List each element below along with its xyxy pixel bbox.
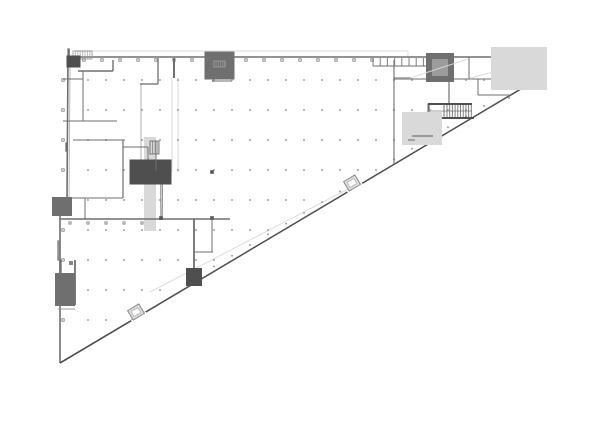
plan-element	[267, 199, 269, 201]
plan-element	[375, 109, 377, 111]
plan-element	[87, 109, 89, 111]
plan-element	[231, 199, 233, 201]
plan-element	[281, 59, 283, 61]
plan-element	[231, 139, 233, 141]
plan-element	[195, 199, 197, 201]
plan-element	[249, 139, 251, 141]
plan-element	[137, 59, 139, 61]
plan-element	[357, 79, 359, 81]
wall-end-cap	[190, 272, 198, 282]
plan-element	[249, 109, 251, 111]
plan-element	[123, 109, 125, 111]
plan-element	[303, 169, 305, 171]
plan-element	[267, 79, 269, 81]
plan-element	[321, 109, 323, 111]
plan-element	[335, 59, 337, 61]
plan-element	[267, 109, 269, 111]
plan-element	[213, 229, 215, 231]
plan-element	[159, 289, 161, 291]
plan-element	[105, 229, 107, 231]
plan-element	[62, 169, 64, 171]
plan-element	[357, 139, 359, 141]
floor-plan-page	[0, 0, 600, 424]
plan-element	[195, 169, 197, 171]
plan-element	[87, 319, 89, 321]
plan-element	[70, 59, 77, 64]
plan-element	[303, 199, 305, 201]
plan-element	[285, 223, 287, 225]
plan-element	[285, 109, 287, 111]
plan-element	[339, 169, 341, 171]
plan-element	[141, 139, 143, 141]
plan-element	[123, 229, 125, 231]
entrance-vestibule-mid	[342, 174, 364, 196]
plan-element	[245, 59, 247, 61]
plan-element	[87, 229, 89, 231]
plan-element	[177, 259, 179, 261]
plan-element	[267, 139, 269, 141]
plan-element	[105, 199, 107, 201]
plan-element	[353, 59, 355, 61]
plan-element	[87, 79, 89, 81]
mid-wall-column-ticks	[69, 222, 143, 224]
plan-element	[412, 122, 432, 135]
plan-element	[141, 199, 143, 201]
plan-element	[375, 169, 377, 171]
plan-element	[141, 79, 143, 81]
plan-element	[267, 229, 269, 231]
room-column	[69, 261, 73, 265]
plan-element	[195, 79, 197, 81]
plan-element	[249, 79, 251, 81]
plan-element	[141, 259, 143, 261]
plan-element	[267, 234, 269, 236]
plan-element	[159, 229, 161, 231]
plan-element	[177, 79, 179, 81]
plan-element	[159, 79, 161, 81]
plan-element	[57, 202, 67, 211]
plan-element	[62, 229, 64, 231]
plan-element	[285, 79, 287, 81]
plan-element	[375, 139, 377, 141]
plan-element	[123, 259, 125, 261]
plan-element	[177, 229, 179, 231]
plan-element	[190, 272, 198, 282]
plan-element	[101, 59, 103, 61]
plan-element	[357, 109, 359, 111]
plan-element	[317, 59, 319, 61]
plan-element	[375, 79, 377, 81]
plan-element	[87, 259, 89, 261]
plan-element	[177, 109, 179, 111]
plan-element	[213, 266, 215, 268]
plan-element	[231, 169, 233, 171]
plan-element	[177, 139, 179, 141]
entrance-vestibule-mid	[342, 174, 364, 196]
plan-element	[105, 109, 107, 111]
plan-element	[285, 199, 287, 201]
plan-element	[159, 259, 161, 261]
plan-element	[249, 229, 251, 231]
plan-element	[195, 259, 197, 261]
plan-element	[123, 289, 125, 291]
plan-element	[213, 109, 215, 111]
plan-element	[62, 259, 64, 261]
plan-element	[105, 79, 107, 81]
plan-element	[249, 199, 251, 201]
plan-element	[159, 109, 161, 111]
plan-element	[87, 289, 89, 291]
plan-element	[231, 109, 233, 111]
plan-element	[191, 59, 193, 61]
plan-element	[285, 169, 287, 171]
plan-element	[263, 59, 265, 61]
plan-element	[321, 201, 323, 203]
plan-element	[87, 169, 89, 171]
core-wall-chunk	[140, 170, 161, 174]
plan-element	[105, 222, 107, 224]
plan-element	[303, 109, 305, 111]
plan-element	[195, 229, 197, 231]
plan-element	[213, 259, 215, 261]
plan-element	[303, 79, 305, 81]
louvre-fins	[373, 58, 431, 66]
plan-element	[150, 189, 348, 292]
plan-element	[195, 139, 197, 141]
plan-element	[299, 59, 301, 61]
plan-element	[267, 169, 269, 171]
plan-element	[177, 199, 179, 201]
stair-landing	[60, 294, 70, 301]
plan-element	[123, 199, 125, 201]
plan-element	[141, 289, 143, 291]
plan-element	[210, 170, 214, 174]
plan-element	[119, 59, 121, 61]
plan-element	[69, 222, 71, 224]
ramp-edge-line	[150, 189, 348, 292]
floor-plan-drawing	[0, 0, 600, 424]
plan-element	[321, 169, 323, 171]
plan-element	[339, 79, 341, 81]
plan-element	[303, 212, 305, 214]
plan-element	[321, 139, 323, 141]
plan-element	[140, 170, 161, 174]
left-wall-inner	[69, 64, 70, 198]
plan-element	[69, 64, 70, 198]
plan-element	[213, 139, 215, 141]
plan-element	[159, 216, 163, 220]
plan-element	[62, 139, 64, 141]
plan-element	[105, 169, 107, 171]
plan-element	[123, 222, 125, 224]
plan-element	[339, 109, 341, 111]
plan-element	[303, 139, 305, 141]
plan-element	[447, 126, 449, 128]
plan-element	[285, 139, 287, 141]
wall-pier	[57, 202, 67, 211]
plan-element	[411, 148, 413, 150]
plan-element	[105, 259, 107, 261]
plan-element	[357, 169, 359, 171]
plan-element	[123, 79, 125, 81]
plan-element	[195, 109, 197, 111]
plan-element	[321, 79, 323, 81]
plan-element	[66, 143, 67, 151]
plan-element	[62, 319, 64, 321]
plan-element	[105, 289, 107, 291]
corner-shaft	[70, 59, 77, 64]
plan-element	[87, 199, 89, 201]
plan-element	[141, 222, 143, 224]
plan-element	[87, 222, 89, 224]
plan-element	[213, 199, 215, 201]
diagonal-room-outline	[412, 122, 432, 135]
plan-element	[155, 59, 157, 61]
plan-element	[231, 229, 233, 231]
plan-element	[231, 255, 233, 257]
elevator-shaft	[58, 241, 59, 260]
wall-pier	[66, 143, 67, 151]
plan-element	[141, 109, 143, 111]
plan-element	[60, 294, 70, 301]
plan-element	[411, 109, 413, 111]
plan-element	[69, 261, 73, 265]
plan-element	[249, 244, 251, 246]
plan-element	[483, 105, 485, 107]
plan-element	[177, 169, 179, 171]
plan-element	[339, 191, 341, 193]
plan-element	[62, 109, 64, 111]
plan-element	[249, 169, 251, 171]
plan-element	[339, 139, 341, 141]
plan-element	[141, 229, 143, 231]
plan-element	[105, 319, 107, 321]
